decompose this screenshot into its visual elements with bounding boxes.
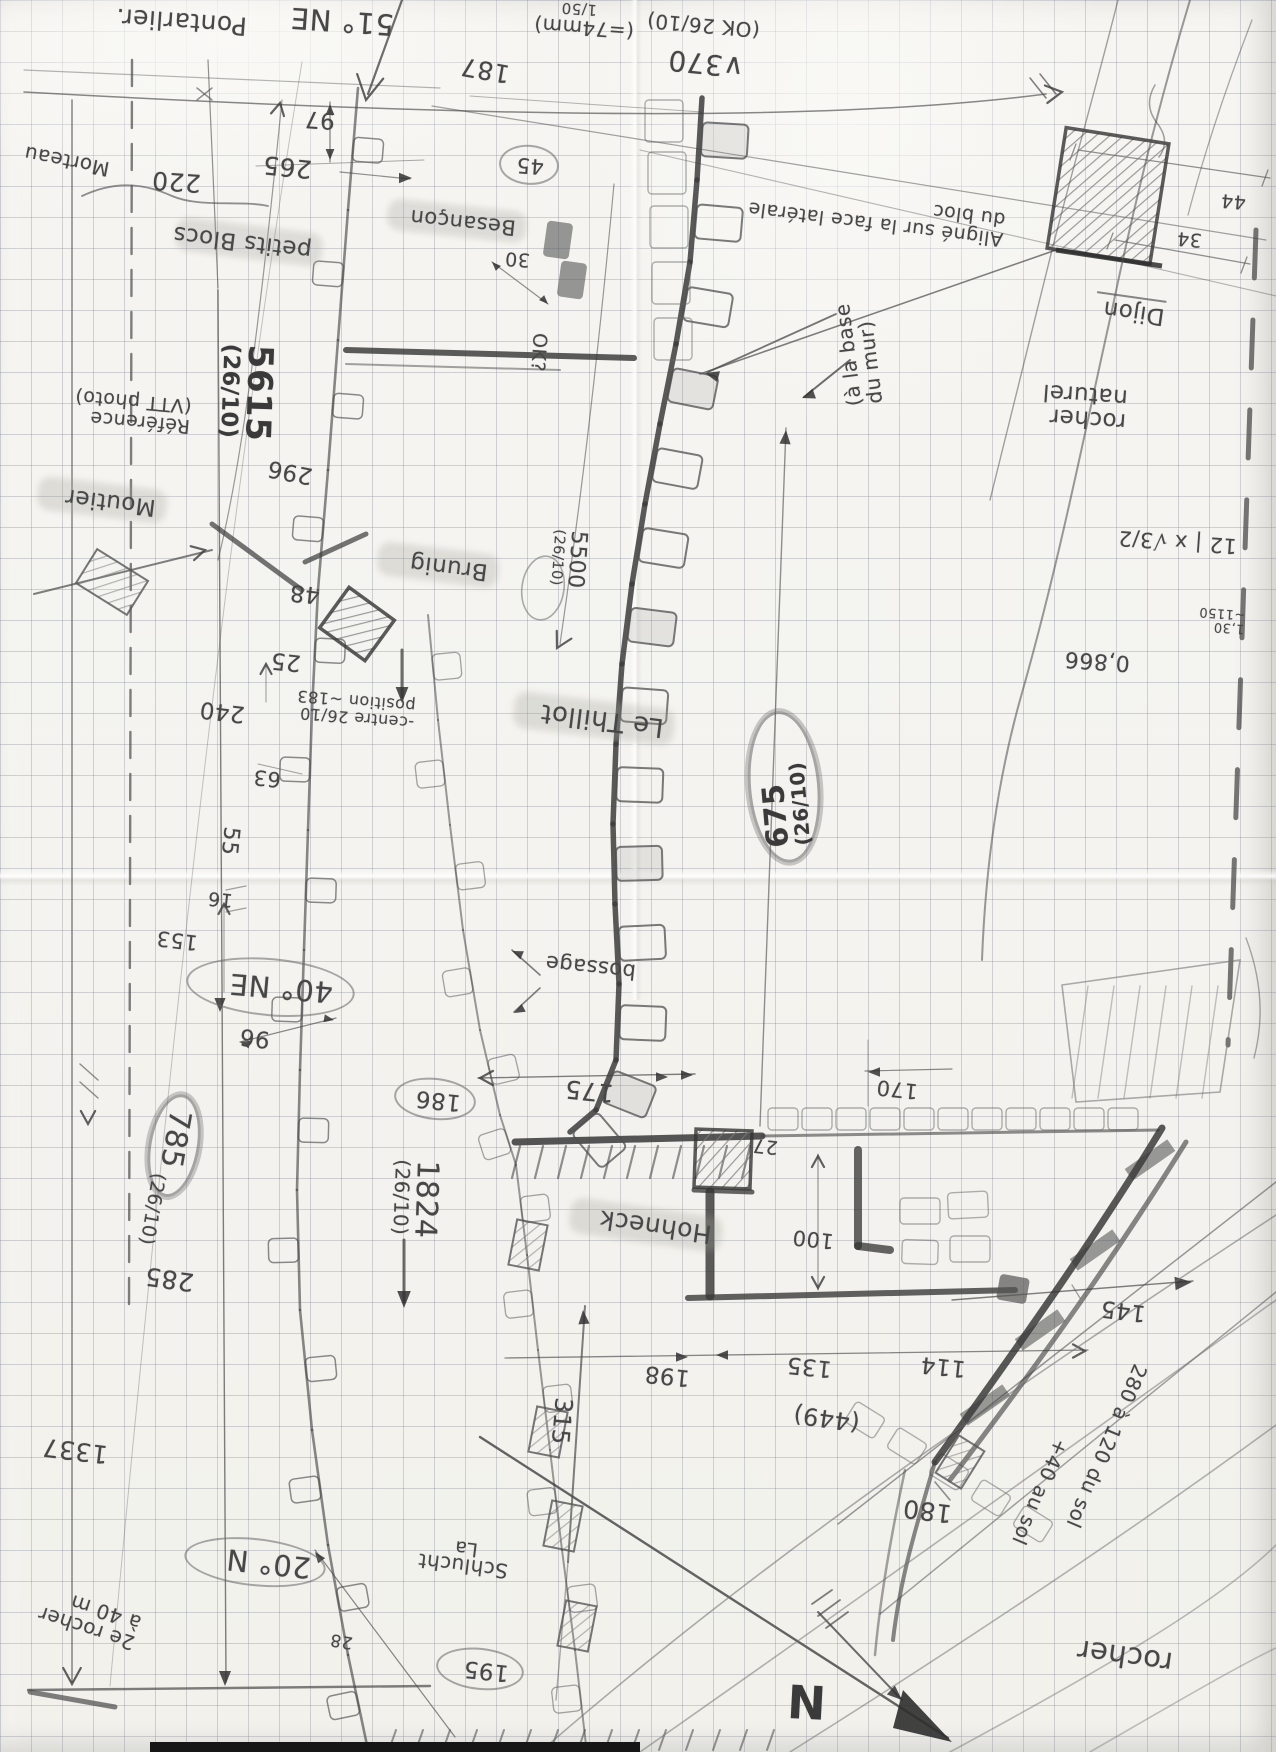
note-centre-position: -centre 26/10position ~183 (289, 687, 416, 731)
dim-296: 296 (256, 453, 315, 487)
label-bearing-20n: 20° N (182, 1531, 328, 1594)
label-besancon: Besançon (391, 203, 523, 238)
dim-28: 28 (316, 1627, 355, 1651)
dim-449-text: (449) (784, 1400, 862, 1435)
dim-97-text: 97 (292, 105, 336, 132)
dim-180-text: 180 (893, 1494, 954, 1527)
dim-55-text: 55 (214, 825, 242, 873)
dim-100-text: 100 (783, 1224, 835, 1251)
dim-186-text: 186 (408, 1084, 462, 1113)
dim-220-text: 220 (142, 166, 202, 196)
compass-north: N (765, 1674, 827, 1725)
dim-16: 16 (198, 886, 234, 909)
dim-145-text: 145 (1089, 1294, 1147, 1325)
label-brunig-text: Brunig (387, 547, 489, 583)
dim-186: 186 (392, 1074, 478, 1124)
dim-187: 187 (450, 51, 512, 87)
dim-5615-text: (26/10) (215, 343, 243, 464)
dim-195: 195 (434, 1644, 526, 1695)
dim-30-text: 30 (493, 247, 530, 269)
calc-0866: 0,866 (1054, 645, 1130, 673)
dim-370: ∨370 (645, 43, 746, 82)
note-ok-q-text: OK? (525, 332, 549, 391)
dim-34-text: 34 (1167, 227, 1203, 250)
dim-135: 135 (775, 1350, 833, 1380)
dim-195-text: 195 (450, 1654, 510, 1684)
dim-34: 34 (1167, 227, 1203, 250)
dim-153-text: 153 (145, 925, 199, 953)
dim-240: 240 (189, 695, 247, 725)
label-besancon-text: Besançon (397, 204, 517, 238)
note-a-la-base: (à la basedu mur) (829, 278, 886, 407)
dim-170: 170 (865, 1074, 919, 1101)
dim-449: (449) (784, 1400, 862, 1435)
dim-198-text: 198 (633, 1359, 691, 1389)
note-280-du-sol: 280 à 120 du sol (1059, 1361, 1150, 1539)
dim-27: 27 (743, 1133, 779, 1156)
dim-265: 265 (251, 150, 313, 182)
label-bearing-40ne: 40° NE (184, 951, 357, 1024)
note-bossage-text: bossage (535, 950, 637, 982)
dim-785-date: (26/10) (133, 1171, 167, 1258)
dim-16-text: 16 (198, 886, 234, 909)
dim-175-text: 175 (551, 1074, 615, 1106)
label-pontarlier: Pontarlier. (51, 0, 247, 39)
dim-187-text: 187 (450, 51, 512, 87)
dim-100: 100 (783, 1224, 835, 1251)
label-petits-blocs: petits Blocs (179, 222, 319, 263)
compass-north-text: N (765, 1674, 827, 1725)
dim-44-text: 44 (1211, 189, 1247, 212)
label-rocher-naturel: rochernaturel (990, 375, 1128, 432)
dim-25: 25 (262, 646, 302, 674)
dim-145: 145 (1089, 1294, 1147, 1325)
label-rocher: rocher (1027, 1628, 1175, 1678)
calc-0866-text: 0,866 (1054, 645, 1130, 673)
dim-170-text: 170 (865, 1074, 919, 1101)
dim-114: 114 (913, 1350, 967, 1379)
label-moutier: Moutier (41, 481, 163, 519)
label-bearing-51ne: 51° NE (285, 2, 395, 40)
dim-285: 285 (132, 1261, 195, 1295)
label-moutier-text: Moutier (47, 482, 157, 519)
dim-1824: 1824(26/10) (387, 1159, 443, 1281)
label-petits-blocs-text: petits Blocs (185, 222, 313, 261)
dim-1337: 1337 (37, 1433, 110, 1467)
dim-315: 315 (546, 1396, 576, 1452)
label-bearing-20n-text: 20° N (198, 1541, 313, 1583)
dim-28-text: 28 (316, 1627, 355, 1651)
dim-30: 30 (493, 247, 530, 269)
dim-198: 198 (633, 1359, 691, 1389)
note-74mm-text: (=74mm) (521, 13, 634, 42)
dim-45-text: 45 (513, 153, 544, 177)
dim-285-text: 285 (132, 1261, 195, 1295)
note-40-au-sol: +40 au sol (1004, 1436, 1072, 1559)
dim-180: 180 (893, 1494, 954, 1527)
dim-27-text: 27 (743, 1133, 779, 1156)
dim-5615-text: 5615 (238, 344, 278, 465)
dim-45: 45 (498, 143, 561, 187)
handwritten-annotations-layer: Pontarlier.51° NE18797265220Morteaupetit… (0, 0, 1276, 1752)
dim-96: 96 (227, 1022, 272, 1051)
label-la-schlucht-2: Schlucht (415, 1549, 509, 1581)
note-aligne: Aligné sur la face latéraledu bloc (773, 181, 1006, 248)
note-74mm: (=74mm) (521, 13, 634, 42)
dim-135-text: 135 (775, 1350, 833, 1380)
label-dijon: Dijon (1093, 291, 1166, 327)
calc-sqrt3-over-2: 12 | x √3/2 (1111, 526, 1237, 556)
calc-sqrt3-over-2-text: 12 | x √3/2 (1111, 526, 1237, 556)
dim-220: 220 (142, 166, 202, 196)
label-bearing-51ne-text: 51° NE (285, 2, 395, 40)
dim-296-text: 296 (256, 453, 315, 487)
dim-153: 153 (145, 925, 199, 953)
label-la-schlucht-2-text: Schlucht (415, 1549, 509, 1581)
note-ok-2610-text: (OK 26/10) (627, 8, 760, 40)
dim-48: 48 (279, 578, 321, 606)
dim-44: 44 (1211, 189, 1247, 212)
dim-1824-text: (26/10) (387, 1159, 412, 1280)
label-hohneck-text: Hohneck (579, 1203, 713, 1247)
label-morteau-text: Morteau (17, 141, 111, 179)
note-280-du-sol-text: 280 à 120 du sol (1059, 1361, 1150, 1539)
note-bossage: bossage (535, 950, 637, 982)
dim-63-text: 63 (242, 764, 282, 790)
label-pontarlier-text: Pontarlier. (51, 0, 247, 39)
label-morteau: Morteau (17, 141, 111, 179)
label-bearing-40ne-text: 40° NE (207, 967, 334, 1008)
calc-1150: 1,30~1150 (1184, 604, 1246, 635)
note-reference-photo: Référence(VTT photo) (55, 384, 193, 435)
dim-785-date-text: (26/10) (133, 1171, 167, 1258)
dim-114-text: 114 (913, 1350, 967, 1379)
dim-370-text: ∨370 (645, 43, 746, 82)
dim-175: 175 (551, 1074, 615, 1106)
dim-97: 97 (292, 105, 336, 132)
dim-265-text: 265 (251, 150, 313, 182)
dim-315-text: 315 (546, 1396, 576, 1452)
label-le-thillot-text: Le Thillot (523, 697, 665, 741)
dim-55: 55 (214, 825, 242, 873)
note-ok-2610: (OK 26/10) (627, 8, 760, 40)
dim-48-text: 48 (279, 578, 321, 606)
label-le-thillot: Le Thillot (517, 696, 671, 741)
dim-63: 63 (242, 764, 282, 790)
note-40-au-sol-text: +40 au sol (1004, 1436, 1072, 1559)
label-brunig: Brunig (381, 546, 495, 583)
dim-1337-text: 1337 (37, 1433, 110, 1467)
dim-5615: 5615(26/10) (215, 343, 278, 465)
graph-paper-sheet: Pontarlier.51° NE18797265220Morteaupetit… (0, 0, 1276, 1752)
dim-675: 675(26/10) (742, 708, 827, 866)
dim-240-text: 240 (189, 695, 247, 725)
dim-25-text: 25 (262, 646, 302, 674)
note-2e-rocher: 2e rocherà 40 m (21, 1578, 143, 1653)
label-dijon-text: Dijon (1093, 294, 1166, 327)
note-ok-q: OK? (525, 332, 549, 391)
dim-5500: 5500(26/10) (545, 529, 590, 627)
dim-96-text: 96 (227, 1022, 272, 1051)
label-hohneck: Hohneck (573, 1202, 719, 1248)
label-rocher-text: rocher (1027, 1628, 1175, 1678)
